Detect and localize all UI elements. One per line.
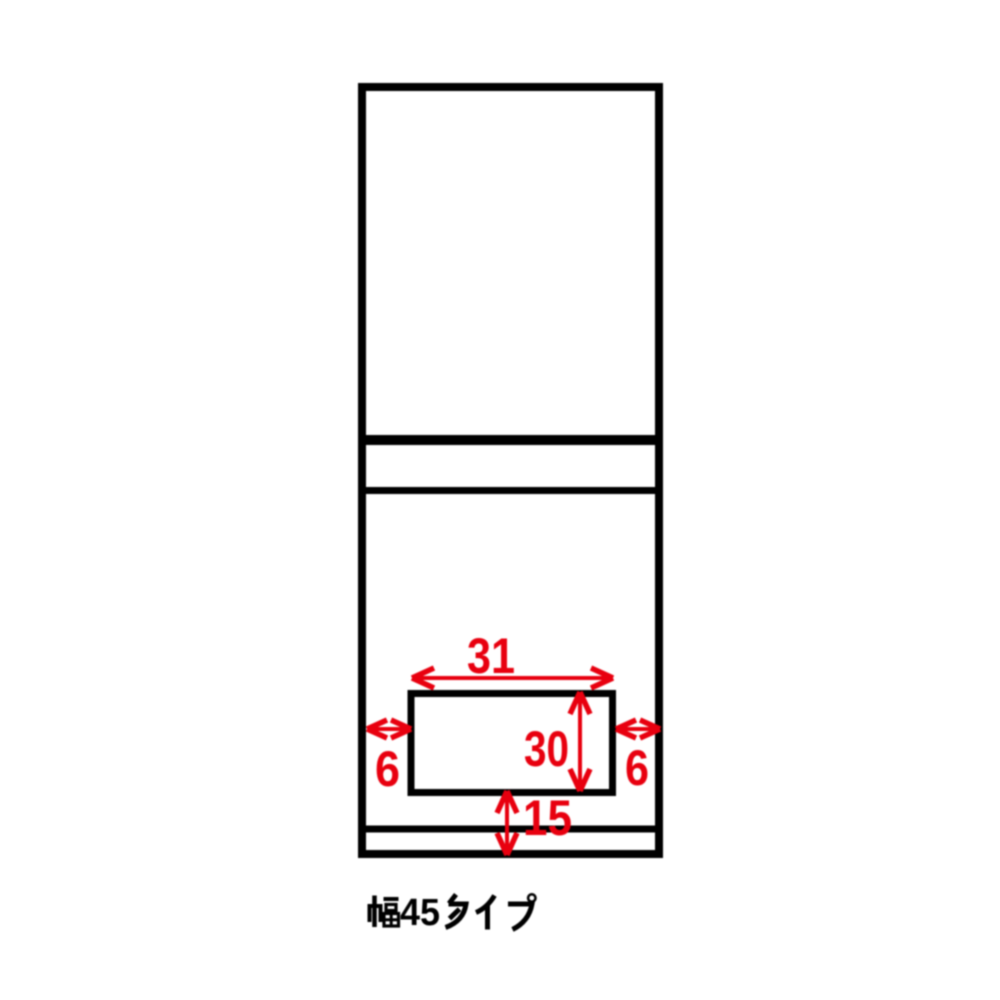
svg-text:15: 15 bbox=[523, 790, 572, 846]
svg-text:30: 30 bbox=[524, 721, 569, 777]
svg-text:45: 45 bbox=[400, 892, 440, 934]
svg-text:6: 6 bbox=[625, 740, 649, 796]
svg-text:31: 31 bbox=[467, 628, 515, 684]
svg-text:6: 6 bbox=[375, 741, 400, 797]
